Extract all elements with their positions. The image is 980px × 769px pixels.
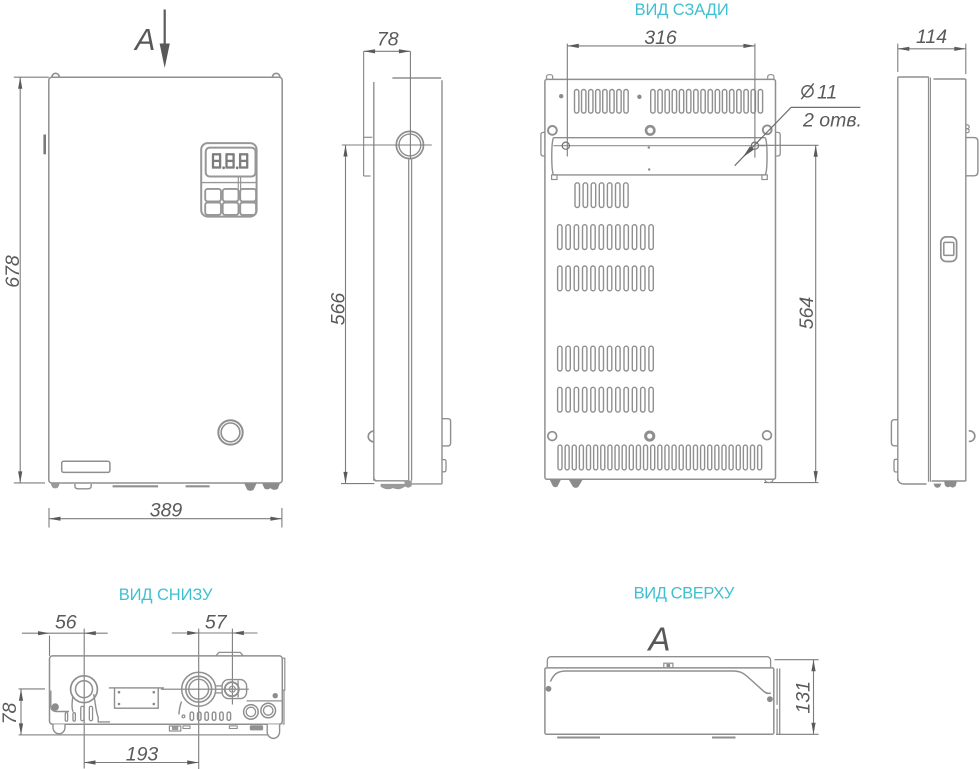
svg-text:A: A — [647, 621, 671, 658]
svg-text:389: 389 — [150, 499, 183, 521]
svg-text:ВИД СНИЗУ: ВИД СНИЗУ — [119, 586, 213, 604]
svg-text:A: A — [133, 23, 155, 57]
svg-text:11: 11 — [817, 81, 837, 103]
svg-text:78: 78 — [0, 703, 21, 725]
svg-text:131: 131 — [793, 681, 815, 714]
svg-text:56: 56 — [55, 612, 77, 634]
svg-text:ВИД СЗАДИ: ВИД СЗАДИ — [635, 1, 729, 19]
svg-text:78: 78 — [377, 29, 399, 51]
svg-text:678: 678 — [2, 255, 24, 288]
svg-text:ВИД СВЕРХУ: ВИД СВЕРХУ — [634, 585, 735, 603]
svg-text:316: 316 — [644, 27, 677, 49]
svg-text:57: 57 — [205, 612, 228, 634]
svg-text:2 отв.: 2 отв. — [802, 109, 862, 131]
svg-text:114: 114 — [916, 26, 947, 48]
svg-text:566: 566 — [328, 293, 350, 326]
svg-text:564: 564 — [796, 297, 818, 330]
svg-text:193: 193 — [126, 744, 159, 766]
